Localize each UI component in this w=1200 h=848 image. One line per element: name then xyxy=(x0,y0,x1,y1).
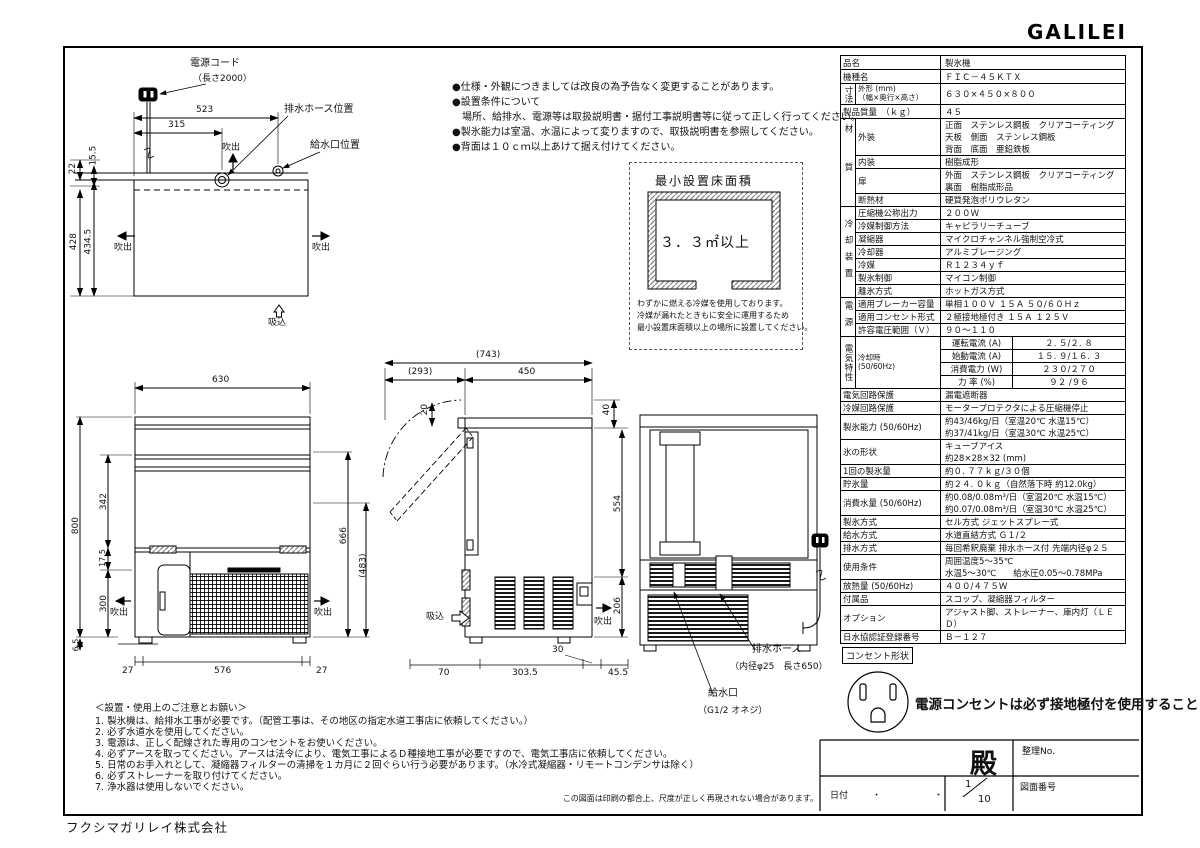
dim-20: 20 xyxy=(420,404,431,415)
spec-row: 給水方式水道直結方式 Ｇ１/２ xyxy=(841,529,1126,542)
spec-row: 排水方式毎回希釈廃棄 排水ホース付 先端内径φ２５ xyxy=(841,542,1126,555)
spec-row: 使用条件周囲温度5～35℃ 水温5～30℃ 給水圧0.05～0.78MPa xyxy=(841,555,1126,580)
spec-value: アジャスト脚、ストレーナー、庫内灯（ＬＥＤ） xyxy=(941,606,1126,631)
water-inlet-spec: （G1/2 オネジ） xyxy=(698,706,767,717)
note-line: ●背面は１０ｃｍ以上あけて据え付けてください。 xyxy=(452,138,680,153)
spec-value: 単相１００Ｖ １５Ａ ５０/６０Ｈｚ xyxy=(941,298,1126,311)
spec-label: 氷の形状 xyxy=(841,440,941,465)
spec-label: 品名 xyxy=(841,56,941,70)
outlet-note: 電源コンセントは必ず接地極付を使用すること xyxy=(915,693,1199,713)
dim-743: (743) xyxy=(476,350,500,361)
inlet-pos-label: 給水口位置 xyxy=(310,140,360,153)
spec-sublabel: 消費電力 (W) xyxy=(941,363,1013,376)
spec-value: マイクロチャンネル強制空冷式 xyxy=(941,233,1126,246)
spec-label: 機種名 xyxy=(841,70,941,84)
spec-label: 扉 xyxy=(856,169,941,194)
spec-value: 毎回希釈廃棄 排水ホース付 先端内径φ２５ xyxy=(941,542,1126,555)
spec-label: 排水方式 xyxy=(841,542,941,555)
spec-label: 日水協認証登録番号 xyxy=(841,631,941,644)
spec-row: 寸法外形 (mm) （幅×奥行×高さ）６３０×４５０×８００ xyxy=(841,84,1126,105)
spec-row: 1回の製氷量約０. ７７ｋｇ/３０個 xyxy=(841,465,1126,478)
spec-value: ２極接地極付き １５Ａ １２５Ｖ xyxy=(941,311,1126,324)
spec-value: 周囲温度5～35℃ 水温5～30℃ 給水圧0.05～0.78MPa xyxy=(941,555,1126,580)
dim-666: 666 xyxy=(339,527,350,544)
spec-label: 電気回路保護 xyxy=(841,389,941,402)
dim-483: (483) xyxy=(358,554,369,578)
power-cord-length: （長さ2000） xyxy=(193,74,252,85)
dim-15-5: 15.5 xyxy=(88,146,99,166)
blowout-left-label: 吹出 xyxy=(114,243,132,254)
spec-value: ４５ xyxy=(941,105,1126,119)
spec-value: キャピラリーチューブ xyxy=(941,220,1126,233)
spec-value: セル方式 ジェットスプレー式 xyxy=(941,516,1126,529)
blowout-label: 吹出 xyxy=(594,617,612,628)
spec-group: 冷却装置 xyxy=(841,207,856,298)
spec-label: 外形 (mm) （幅×奥行×高さ） xyxy=(856,84,941,105)
spec-value: 漏電遮断器 xyxy=(941,389,1126,402)
note-line: ●設置条件について xyxy=(452,93,540,108)
spec-value: 硬質発泡ポリウレタン xyxy=(941,194,1126,207)
spec-row: 製品質量 （ｋｇ）４５ xyxy=(841,105,1126,119)
spec-value: 樹脂成形 xyxy=(941,156,1126,169)
spec-value: マイコン制御 xyxy=(941,272,1126,285)
dim-342: 342 xyxy=(99,493,110,510)
scale-denominator: 10 xyxy=(978,794,991,805)
dim-554: 554 xyxy=(613,495,624,512)
spec-row: 製氷方式セル方式 ジェットスプレー式 xyxy=(841,516,1126,529)
spec-label: 断熱材 xyxy=(856,194,941,207)
spec-label: 付属品 xyxy=(841,593,941,606)
spec-value: ９０～１１０ xyxy=(941,324,1126,337)
dim-17-5: 17.5 xyxy=(98,549,108,567)
spec-row: 内装樹脂成形 xyxy=(841,156,1126,169)
spec-row: 品名製氷機 xyxy=(841,56,1126,70)
spec-value: 水道直結方式 Ｇ１/２ xyxy=(941,529,1126,542)
spec-value: Ｒ１２３４ｙｆ xyxy=(941,259,1126,272)
dim-303-5: 303.5 xyxy=(512,668,538,679)
spec-row: 付属品スコップ、凝縮器フィルター xyxy=(841,593,1126,606)
spec-value: 約２４. ０ｋｇ（自然落下時 約12.0kg） xyxy=(941,478,1126,491)
spec-value: ２. ５/２. ８ xyxy=(1013,337,1126,350)
spec-group: 電気特性 xyxy=(841,337,856,389)
outlet-shape-label: コンセント形状 xyxy=(842,647,913,664)
cautions-title: ＜設置・使用上のご注意とお願い＞ xyxy=(95,700,247,714)
spec-value: ２００Ｗ xyxy=(941,207,1126,220)
spec-label: 適用ブレーカー容量 xyxy=(856,298,941,311)
spec-row: 放熱量 (50/60Hz)４００/４７５Ｗ xyxy=(841,580,1126,593)
spec-label: 冷媒回路保護 xyxy=(841,402,941,415)
note-line: 場所、給排水、電源等は取扱説明書・据付工事説明書等に従って正しく行ってください。 xyxy=(452,108,861,123)
min-area-note: わずかに燃える冷媒を使用しております。 xyxy=(637,298,787,309)
spec-row: 凝縮器マイクロチャンネル強制空冷式 xyxy=(841,233,1126,246)
spec-value: ＦＩＣ－４５ＫＴＸ xyxy=(941,70,1126,84)
drain-hose-spec: （内径φ25 長さ650） xyxy=(730,662,828,673)
spec-row: 冷媒Ｒ１２３４ｙｆ xyxy=(841,259,1126,272)
spec-group: 電源 xyxy=(841,298,856,337)
spec-label: 消費水量 (50/60Hz) xyxy=(841,491,941,516)
spec-value: 約43/46kg/日（室温20℃ 水温15℃） 約37/41kg/日（室温30℃… xyxy=(941,415,1126,440)
spec-row: オプションアジャスト脚、ストレーナー、庫内灯（ＬＥＤ） xyxy=(841,606,1126,631)
drawing-sheet: GALILEI xyxy=(0,0,1200,848)
spec-label: 許容電圧範囲（Ｖ） xyxy=(856,324,941,337)
date-dots: ・ ・ xyxy=(872,788,965,801)
power-cord-label: 電源コード xyxy=(190,58,240,71)
spec-table: 品名製氷機 機種名ＦＩＣ－４５ＫＴＸ 寸法外形 (mm) （幅×奥行×高さ）６３… xyxy=(840,55,1126,644)
blowout-right-label: 吹出 xyxy=(312,243,330,254)
note-line: ●製氷能力は室温、水温によって変りますので、取扱説明書を参照してください。 xyxy=(452,123,819,138)
spec-row: 電源適用ブレーカー容量単相１００Ｖ １５Ａ ５０/６０Ｈｚ xyxy=(841,298,1126,311)
drawing-no-label: 図面番号 xyxy=(1020,780,1056,793)
dim-27-left: 27 xyxy=(122,666,133,677)
spec-row: 機種名ＦＩＣ－４５ＫＴＸ xyxy=(841,70,1126,84)
spec-label: 適用コンセント形式 xyxy=(856,311,941,324)
dim-800: 800 xyxy=(71,517,82,534)
spec-row: 電気回路保護漏電遮断器 xyxy=(841,389,1126,402)
spec-label: オプション xyxy=(841,606,941,631)
dim-45-5: 45.5 xyxy=(608,668,628,679)
spec-value: ６３０×４５０×８００ xyxy=(941,84,1126,105)
spec-value: アルミブレージング xyxy=(941,246,1126,259)
spec-value: 正面 ステンレス鋼板 クリアコーティング 天板 側面 ステンレス鋼板 背面 底面… xyxy=(941,119,1126,156)
spec-label: 1回の製氷量 xyxy=(841,465,941,478)
spec-row: 冷媒制御方法キャピラリーチューブ xyxy=(841,220,1126,233)
spec-label: 凝縮器 xyxy=(856,233,941,246)
spec-value: モータープロテクタによる圧縮機停止 xyxy=(941,402,1126,415)
spec-value: ４００/４７５Ｗ xyxy=(941,580,1126,593)
dim-428: 428 xyxy=(69,233,80,250)
spec-row: 製氷能力 (50/60Hz)約43/46kg/日（室温20℃ 水温15℃） 約3… xyxy=(841,415,1126,440)
dim-206: 206 xyxy=(613,597,624,614)
spec-row: 冷却装置圧縮機公称出力２００Ｗ xyxy=(841,207,1126,220)
spec-value: スコップ、凝縮器フィルター xyxy=(941,593,1126,606)
spec-sublabel: 始動電流 (A) xyxy=(941,350,1013,363)
spec-label: 製氷能力 (50/60Hz) xyxy=(841,415,941,440)
spec-label: 冷媒制御方法 xyxy=(856,220,941,233)
caution-item: 7. 浄水器は使用しないでください。 xyxy=(95,779,249,793)
min-area-title: 最小設置床面積 xyxy=(655,172,753,189)
dim-6-5: 6.5 xyxy=(71,639,81,652)
spec-label: 冷却時 (50/60Hz) xyxy=(856,337,941,389)
dim-300: 300 xyxy=(99,595,110,612)
dim-30: 30 xyxy=(552,645,563,656)
spec-label: 製氷方式 xyxy=(841,516,941,529)
blowout-left-label: 吹出 xyxy=(110,608,128,619)
spec-label: 貯氷量 xyxy=(841,478,941,491)
spec-row: 氷の形状キューブアイス 約28×28×32 (mm) xyxy=(841,440,1126,465)
spec-label: 冷媒 xyxy=(856,259,941,272)
spec-value: ９２ /９６ xyxy=(1013,376,1126,389)
spec-label: 製品質量 （ｋｇ） xyxy=(841,105,941,119)
spec-row: 日水協認証登録番号Ｂ－１２７ xyxy=(841,631,1126,644)
spec-row: 材質外装正面 ステンレス鋼板 クリアコーティング 天板 側面 ステンレス鋼板 背… xyxy=(841,119,1126,156)
drain-hose-pos-label: 排水ホース位置 xyxy=(284,104,354,117)
print-scale-note: この図面は印刷の都合上、尺度が正しく再現されない場合があります。 xyxy=(560,793,818,804)
spec-label: 外装 xyxy=(856,119,941,156)
dim-576: 576 xyxy=(214,666,231,677)
spec-row: 断熱材硬質発泡ポリウレタン xyxy=(841,194,1126,207)
spec-value: １５. ９/１６. ３ xyxy=(1013,350,1126,363)
spec-group: 材質 xyxy=(841,119,856,207)
intake-label: 吸込 xyxy=(426,612,444,623)
galilei-logo: GALILEI xyxy=(1027,20,1127,44)
spec-label: 製氷制御 xyxy=(856,272,941,285)
spec-label: 冷却器 xyxy=(856,246,941,259)
spec-label: 放熱量 (50/60Hz) xyxy=(841,580,941,593)
scale-numerator: 1 xyxy=(965,779,971,790)
spec-value: 製氷機 xyxy=(941,56,1126,70)
addressee-dono: 殿 xyxy=(970,742,997,781)
spec-row: 消費水量 (50/60Hz)約0.08/0.08m³/日（室温20℃ 水温15℃… xyxy=(841,491,1126,516)
min-area-value: ３．３㎡以上 xyxy=(660,232,750,252)
dim-450: 450 xyxy=(518,367,535,378)
spec-row: 冷却器アルミブレージング xyxy=(841,246,1126,259)
spec-row: 許容電圧範囲（Ｖ）９０～１１０ xyxy=(841,324,1126,337)
spec-row: 離氷方式ホットガス方式 xyxy=(841,285,1126,298)
spec-value: キューブアイス 約28×28×32 (mm) xyxy=(941,440,1126,465)
min-area-note: 冷媒が漏れたときもに安全に運用するため xyxy=(637,310,789,321)
dim-523: 523 xyxy=(196,105,213,116)
spec-value: 約0.08/0.08m³/日（室温20℃ 水温15℃） 約0.07/0.08m³… xyxy=(941,491,1126,516)
spec-row: 扉外面 ステンレス鋼板 クリアコーティング 裏面 樹脂成形品 xyxy=(841,169,1126,194)
min-area-note: 最小設置床面積以上の場所に設置してください。 xyxy=(637,322,813,333)
spec-sublabel: 運転電流 (A) xyxy=(941,337,1013,350)
water-inlet-label: 給水口 xyxy=(708,688,738,701)
spec-row: 適用コンセント形式２極接地極付き １５Ａ １２５Ｖ xyxy=(841,311,1126,324)
blowout-right-label: 吹出 xyxy=(314,608,332,619)
spec-value: 外面 ステンレス鋼板 クリアコーティング 裏面 樹脂成形品 xyxy=(941,169,1126,194)
spec-value: 約０. ７７ｋｇ/３０個 xyxy=(941,465,1126,478)
dim-315: 315 xyxy=(168,120,185,131)
company-name: フクシマガリレイ株式会社 xyxy=(66,817,228,836)
spec-label: 圧縮機公称出力 xyxy=(856,207,941,220)
spec-row: 貯氷量約２４. ０ｋｇ（自然落下時 約12.0kg） xyxy=(841,478,1126,491)
control-no-label: 整理No. xyxy=(1022,744,1055,757)
spec-value: ホットガス方式 xyxy=(941,285,1126,298)
spec-row: 冷媒回路保護モータープロテクタによる圧縮機停止 xyxy=(841,402,1126,415)
blowout-top-label: 吹出 xyxy=(222,143,240,154)
dim-293: (293) xyxy=(408,367,432,378)
note-line: ●仕様・外観につきましては改良の為予告なく変更することがあります。 xyxy=(452,78,779,93)
spec-sublabel: 力 率 (%) xyxy=(941,376,1013,389)
spec-value: ２３０/２７０ xyxy=(1013,363,1126,376)
intake-label: 吸込 xyxy=(268,318,286,329)
date-label: 日付 xyxy=(830,788,848,801)
dim-40: 40 xyxy=(602,404,613,415)
spec-label: 内装 xyxy=(856,156,941,169)
spec-label: 使用条件 xyxy=(841,555,941,580)
dim-434-5: 434.5 xyxy=(83,229,94,255)
dim-70: 70 xyxy=(438,668,449,679)
spec-row: 製氷制御マイコン制御 xyxy=(841,272,1126,285)
dim-22: 22 xyxy=(68,163,79,174)
spec-row: 電気特性冷却時 (50/60Hz)運転電流 (A)２. ５/２. ８ xyxy=(841,337,1126,350)
drain-hose-label: 排水ホース xyxy=(752,644,802,657)
dim-630: 630 xyxy=(212,375,229,386)
spec-label: 給水方式 xyxy=(841,529,941,542)
dim-27-right: 27 xyxy=(316,666,327,677)
spec-group: 寸法 xyxy=(841,84,856,105)
spec-label: 離氷方式 xyxy=(856,285,941,298)
spec-value: Ｂ－１２７ xyxy=(941,631,1126,644)
